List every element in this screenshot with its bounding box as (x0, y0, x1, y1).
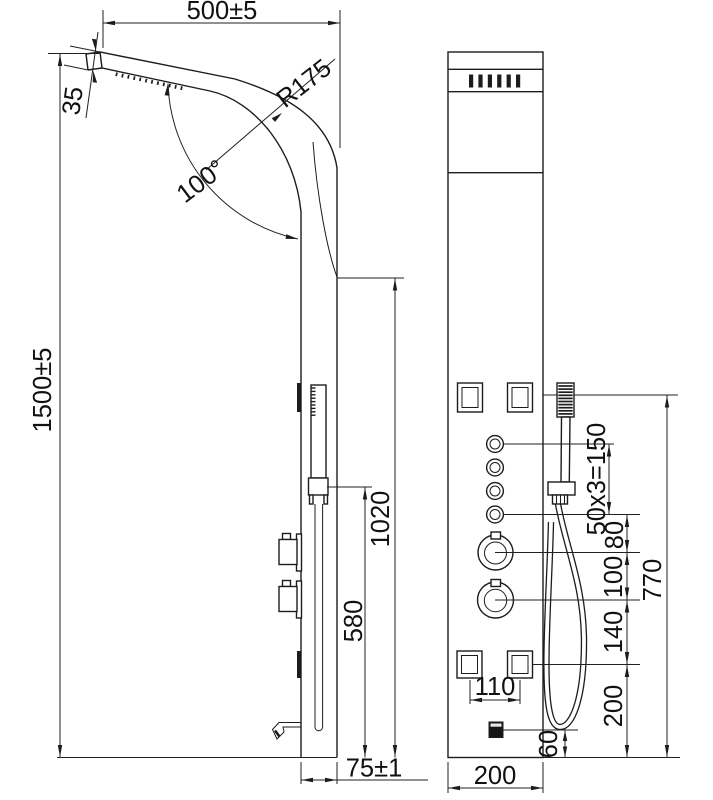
knob-side-1 (279, 540, 297, 565)
inner-tube-curve (313, 142, 337, 277)
hand-shower-front (546, 383, 584, 727)
dim-head-thickness-label: 35 (57, 85, 89, 117)
dim-knob-to-jet-label: 140 (600, 611, 628, 654)
technical-drawing-canvas: 500±5 35 R175 100° 1500±5 (0, 0, 713, 800)
dim-knob-spacing-label: 100 (600, 556, 628, 599)
dim-outlet-height-label: 60 (535, 730, 563, 758)
control-knobs-side (279, 534, 302, 619)
hand-shower-side (309, 385, 329, 731)
hose-side (315, 504, 323, 731)
shower-panel-drawing: 500±5 35 R175 100° 1500±5 (0, 0, 713, 800)
hand-shower-wand-side (311, 385, 326, 478)
dimensions-side: 500±5 35 R175 100° 1500±5 (29, 0, 428, 784)
dim-jet-spacing-label: 110 (475, 673, 516, 701)
wand-ribs-side (312, 388, 316, 415)
dim-panel-height-label: 1020 (367, 491, 395, 548)
side-view: 500±5 35 R175 100° 1500±5 (29, 0, 428, 784)
hand-shower-holder (548, 482, 575, 495)
hose-core (546, 504, 584, 727)
hand-shower-handle (561, 417, 570, 482)
dim-top-width-label: 500±5 (187, 0, 258, 25)
water-outlet (489, 722, 503, 738)
foot-hook (273, 723, 302, 740)
top-jet-side-profile (297, 383, 301, 412)
dim-total-height-label: 1500±5 (29, 348, 57, 433)
dim-bend-radius-label: R175 (271, 54, 336, 114)
front-view: 50x3=150 80 100 140 200 770 (448, 52, 680, 793)
wand-holder-side (309, 478, 329, 495)
nozzle-ticks (116, 73, 182, 90)
dim-handshower-drop-label: 770 (639, 559, 667, 602)
dim-jet-to-bottom-label: 200 (600, 685, 628, 728)
knob-side-2 (279, 587, 297, 612)
dim-handshower-height-label: 580 (340, 600, 368, 643)
dim-button-to-knob-label: 80 (601, 521, 629, 549)
hand-shower-head-front (557, 383, 574, 417)
dim-base-depth-label: 75±1 (346, 755, 403, 783)
dim-panel-width-label: 200 (474, 762, 517, 790)
dim-button-spacing-label: 50x3=150 (583, 423, 611, 536)
bottom-jet-side-profile (297, 651, 301, 678)
